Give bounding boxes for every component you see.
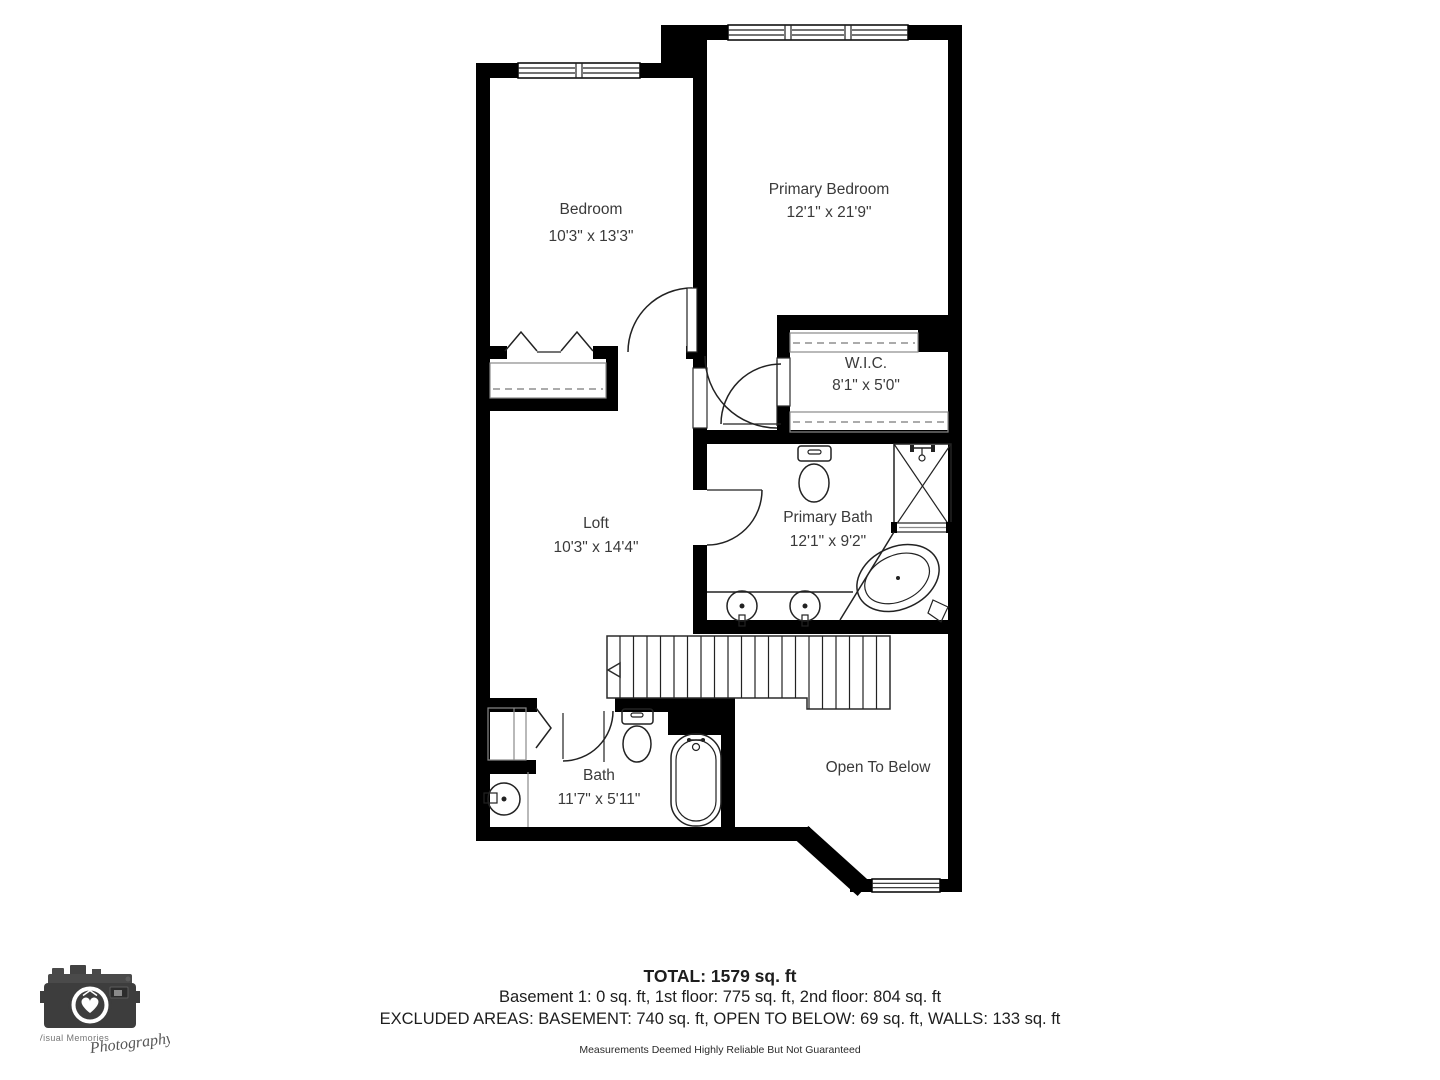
floor-areas-text: Basement 1: 0 sq. ft, 1st floor: 775 sq.… bbox=[0, 987, 1440, 1009]
wic-opening bbox=[777, 358, 790, 406]
bedroom-door bbox=[628, 288, 697, 352]
bedroom-dims: 10'3" x 13'3" bbox=[548, 228, 633, 245]
primary-bath-door bbox=[707, 490, 762, 545]
excluded-areas-text: EXCLUDED AREAS: BASEMENT: 740 sq. ft, OP… bbox=[0, 1009, 1440, 1031]
bath-closet-shelf bbox=[488, 708, 526, 760]
room-labels: Bedroom 10'3" x 13'3" Primary Bedroom 12… bbox=[548, 181, 931, 808]
bedroom-label: Bedroom bbox=[560, 201, 623, 218]
bath-sink-icon bbox=[484, 772, 528, 827]
primary-bath-label: Primary Bath bbox=[783, 509, 873, 526]
angled-wall bbox=[802, 833, 864, 889]
open-to-below-label: Open To Below bbox=[826, 759, 932, 776]
loft-dims: 10'3" x 14'4" bbox=[553, 539, 638, 556]
floorplan-page: Bedroom 10'3" x 13'3" Primary Bedroom 12… bbox=[0, 0, 1440, 1080]
primary-bedroom-dims: 12'1" x 21'9" bbox=[786, 204, 871, 221]
primary-bath-dims: 12'1" x 9'2" bbox=[790, 533, 866, 550]
wic-door bbox=[721, 364, 781, 424]
primary-bedroom-door bbox=[705, 356, 777, 428]
disclaimer-text: Measurements Deemed Highly Reliable But … bbox=[0, 1044, 1440, 1056]
open-below-window bbox=[872, 879, 940, 892]
primary-bedroom-window bbox=[728, 25, 908, 40]
bath-door bbox=[563, 711, 613, 761]
staircase bbox=[607, 636, 890, 709]
bath-label: Bath bbox=[583, 767, 615, 784]
total-area-text: TOTAL: 1579 sq. ft bbox=[0, 966, 1440, 987]
bath-closet-bifold-door bbox=[536, 708, 551, 748]
loft-landing-opening bbox=[693, 368, 707, 428]
bath-dims: 11'7" x 5'11" bbox=[558, 791, 641, 808]
photographer-logo: Visual Memories Photography bbox=[40, 960, 170, 1060]
bedroom-closet-shelf bbox=[490, 363, 606, 398]
shower-icon bbox=[891, 444, 952, 533]
bath-toilet-icon bbox=[604, 709, 653, 762]
primary-bath-toilet-icon bbox=[798, 446, 831, 502]
bath-tub-icon bbox=[671, 734, 721, 826]
wic-dims: 8'1" x 5'0" bbox=[832, 377, 900, 394]
bedroom-window bbox=[518, 63, 640, 78]
primary-bedroom-label: Primary Bedroom bbox=[769, 181, 890, 198]
area-summary: TOTAL: 1579 sq. ft Basement 1: 0 sq. ft,… bbox=[0, 966, 1440, 1056]
wic-label: W.I.C. bbox=[845, 355, 887, 372]
bedroom-closet-bifold-doors bbox=[505, 332, 593, 352]
floorplan-drawing: Bedroom 10'3" x 13'3" Primary Bedroom 12… bbox=[0, 0, 1440, 1080]
camera-icon bbox=[40, 965, 140, 1028]
loft-label: Loft bbox=[583, 515, 610, 532]
